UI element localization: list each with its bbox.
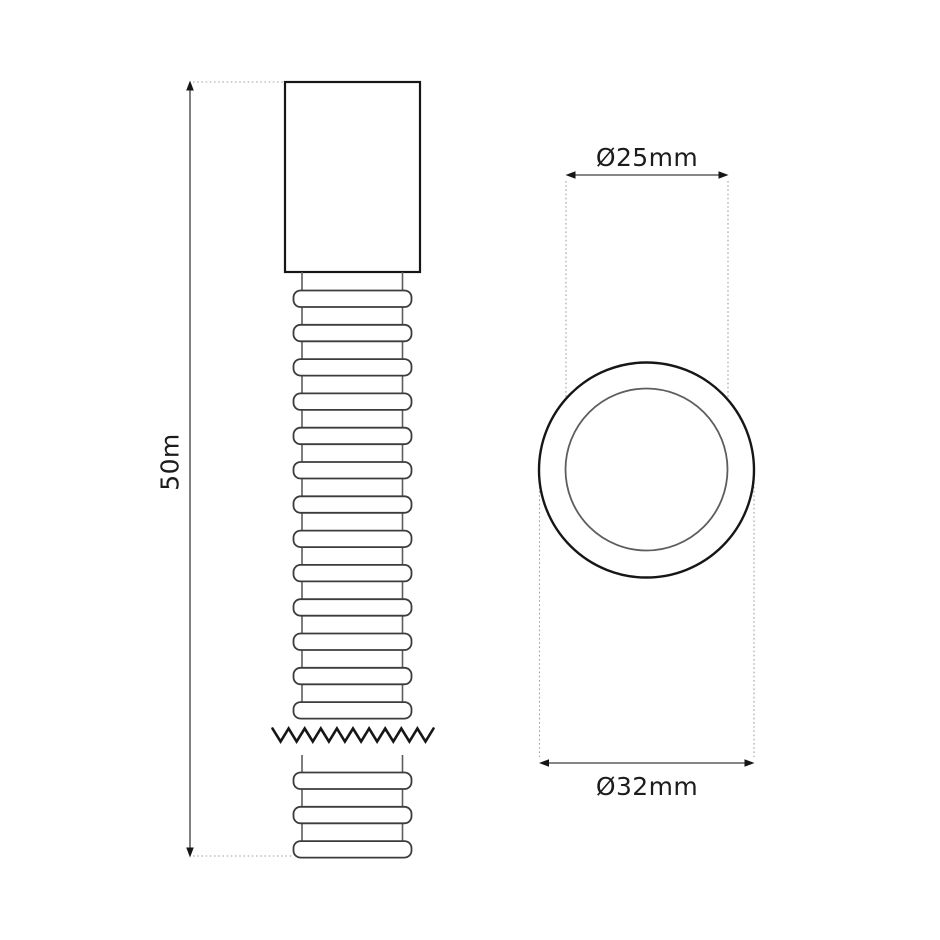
corrugation-ring — [294, 325, 412, 342]
length-label: 50m — [156, 433, 185, 490]
outer-diameter-label: Ø32mm — [596, 772, 698, 801]
corrugation-ring — [294, 599, 412, 616]
corrugation-ring — [294, 393, 412, 410]
length-dimension: 50m — [156, 81, 294, 858]
arrowhead-up-icon — [186, 81, 194, 91]
corrugation-ring — [294, 462, 412, 479]
corrugation-rings-lower — [294, 773, 412, 858]
corrugation-ring — [294, 531, 412, 548]
hose-technical-drawing: 50m Ø25mm — [0, 0, 940, 940]
arrowhead-right-icon — [719, 171, 729, 179]
arrowhead-left-icon — [566, 171, 576, 179]
arrowhead-down-icon — [186, 848, 194, 858]
corrugation-ring — [294, 291, 412, 308]
corrugation-ring — [294, 702, 412, 719]
corrugation-ring — [294, 807, 412, 824]
corrugation-ring — [294, 668, 412, 685]
technical-drawing-canvas: 50m Ø25mm — [0, 0, 940, 940]
corrugation-ring — [294, 841, 412, 858]
side-view-figure: 50m — [156, 81, 434, 858]
arrowhead-left-icon — [539, 759, 549, 767]
inner-diameter-label: Ø25mm — [596, 143, 698, 172]
break-line-zigzag-icon — [273, 729, 434, 742]
corrugation-ring — [294, 359, 412, 376]
corrugation-rings-upper — [294, 291, 412, 719]
corrugation-ring — [294, 428, 412, 445]
hose-connector-body — [285, 82, 420, 272]
corrugation-ring — [294, 496, 412, 513]
corrugation-ring — [294, 634, 412, 651]
cross-section-figure: Ø25mm Ø32mm — [539, 143, 755, 801]
hose-inner-bore-circle — [566, 389, 728, 551]
corrugation-ring — [294, 565, 412, 582]
corrugation-ring — [294, 773, 412, 790]
arrowhead-right-icon — [745, 759, 755, 767]
